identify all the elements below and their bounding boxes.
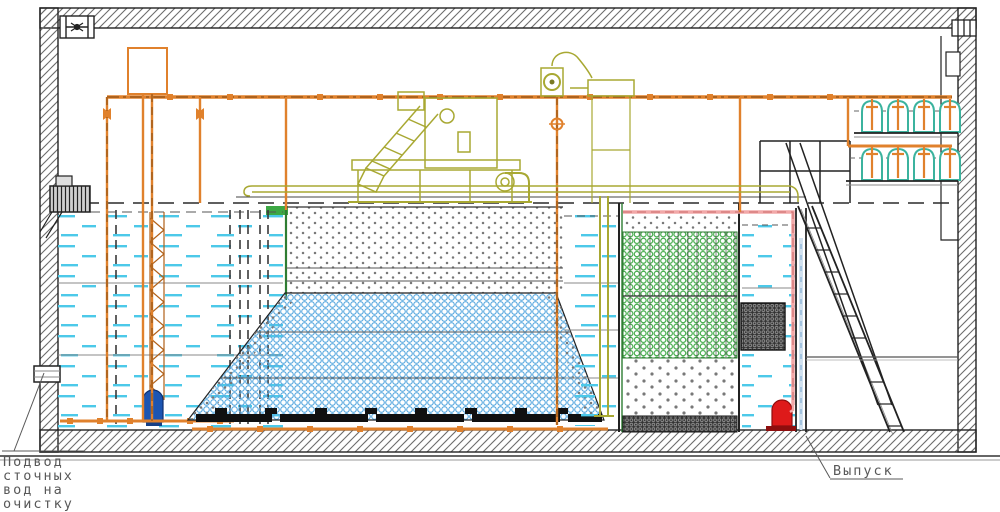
round-drive-unit [541, 52, 592, 96]
screen-conveyor-trough [244, 186, 798, 202]
ventilation-fan-left [60, 16, 94, 38]
transfer-compartment [564, 196, 618, 426]
right-wall [958, 8, 976, 452]
blowers-upper [862, 101, 960, 132]
right-wall-duct [941, 36, 960, 240]
ventilation-fan-right [952, 20, 976, 36]
drawing-canvas: Подвод сточных вод на очистку Выпуск [0, 0, 1000, 512]
inclined-screen [366, 106, 420, 168]
inlet-label-line4: очистку [3, 496, 74, 512]
valve-icon [103, 108, 204, 120]
gray-band-top [623, 216, 737, 232]
control-cabinet [425, 98, 497, 168]
inlet-wall-pipe [34, 366, 60, 382]
left-wall [40, 8, 58, 452]
water [564, 214, 618, 426]
top-wall [40, 8, 976, 28]
gray-media-band [288, 207, 563, 293]
dark-media-band [623, 416, 737, 432]
blower-rack-lower [846, 146, 960, 185]
blower-rack-upper [854, 99, 960, 137]
expansion-tank [128, 48, 167, 94]
gray-band-bottom [623, 358, 737, 416]
floor-slab [40, 430, 976, 452]
dark-media-block [741, 303, 785, 350]
outlet-label: Выпуск [833, 463, 894, 479]
treatment-plant-section: Подвод сточных вод на очистку Выпуск [0, 0, 1000, 512]
screen-motor [398, 92, 424, 110]
biofilter-tank [619, 203, 739, 432]
access-hatch [946, 52, 960, 76]
